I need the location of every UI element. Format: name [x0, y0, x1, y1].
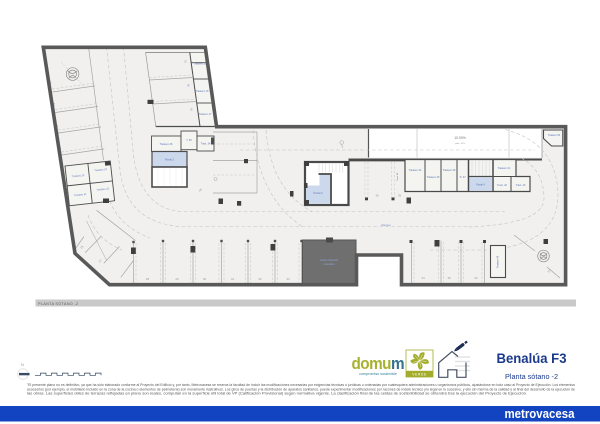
- svg-text:Trastero 48: Trastero 48: [497, 255, 500, 268]
- svg-text:Trast. 34: Trast. 34: [201, 143, 211, 146]
- svg-text:Cuarto depósito: Cuarto depósito: [320, 258, 339, 262]
- svg-text:incendios: incendios: [324, 262, 336, 266]
- svg-text:Planta sótano -2: Planta sótano -2: [505, 372, 558, 381]
- svg-text:domum: domum: [352, 354, 405, 373]
- svg-text:Trastero 15: Trastero 15: [194, 63, 207, 66]
- svg-text:Trastero 45: Trastero 45: [427, 176, 440, 179]
- svg-text:Tr. 47: Tr. 47: [459, 176, 466, 179]
- svg-text:34: 34: [421, 276, 425, 280]
- svg-text:Trastero 17: Trastero 17: [199, 113, 212, 116]
- svg-text:Rampa: Rampa: [381, 223, 390, 227]
- svg-text:Trast. 40: Trast. 40: [396, 172, 399, 181]
- svg-text:29: 29: [175, 277, 179, 281]
- svg-text:Trastero 44: Trastero 44: [409, 169, 422, 172]
- svg-text:33: 33: [286, 277, 290, 281]
- svg-text:31: 31: [231, 277, 235, 281]
- svg-text:Benalúa F3: Benalúa F3: [497, 350, 567, 366]
- svg-text:PLANTA SÓTANO -2: PLANTA SÓTANO -2: [38, 301, 78, 306]
- svg-text:Portal 4: Portal 4: [476, 184, 485, 187]
- svg-text:compromiso sostenible: compromiso sostenible: [359, 372, 397, 376]
- svg-text:28: 28: [146, 277, 150, 281]
- svg-text:30: 30: [203, 277, 207, 281]
- svg-text:39: 39: [398, 194, 402, 198]
- svg-text:Trastero 50: Trastero 50: [548, 134, 561, 137]
- svg-text:Portal 3: Portal 3: [314, 191, 323, 195]
- svg-text:Trastero 36: Trastero 36: [160, 143, 173, 146]
- svg-text:las obras. Las superficies úti: las obras. Las superficies útiles de ter…: [27, 392, 527, 396]
- svg-text:Trast. 42: Trast. 42: [497, 184, 507, 187]
- svg-text:Trastero 41: Trastero 41: [498, 167, 511, 170]
- svg-text:VERDE: VERDE: [412, 373, 427, 377]
- svg-text:pdte. 10%: pdte. 10%: [455, 142, 465, 145]
- svg-text:Portal 2: Portal 2: [165, 158, 174, 162]
- svg-text:metrovacesa: metrovacesa: [505, 406, 576, 421]
- svg-text:T. 35: T. 35: [186, 139, 192, 142]
- svg-text:Trastero 16: Trastero 16: [196, 90, 209, 93]
- svg-text:35: 35: [447, 276, 451, 280]
- svg-text:10.00%: 10.00%: [454, 136, 466, 140]
- svg-text:Trast. 43: Trast. 43: [516, 184, 526, 187]
- svg-text:32: 32: [258, 277, 262, 281]
- svg-text:38: 38: [375, 194, 379, 198]
- svg-text:N: N: [21, 362, 24, 367]
- svg-text:Trastero 46: Trastero 46: [443, 169, 456, 172]
- svg-text:36: 36: [474, 276, 478, 280]
